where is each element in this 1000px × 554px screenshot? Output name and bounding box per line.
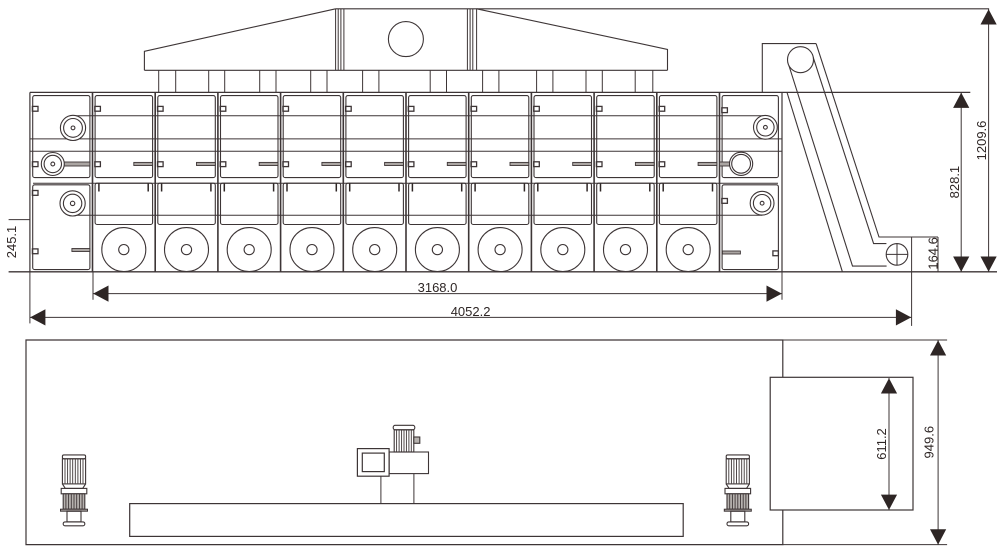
svg-text:245.1: 245.1 [4, 226, 19, 259]
svg-text:949.6: 949.6 [922, 426, 937, 459]
svg-text:611.2: 611.2 [874, 428, 889, 460]
svg-text:1209.6: 1209.6 [974, 121, 989, 161]
svg-text:3168.0: 3168.0 [418, 280, 458, 295]
svg-text:828.1: 828.1 [947, 166, 962, 199]
svg-text:4052.2: 4052.2 [451, 304, 491, 319]
svg-text:164.6: 164.6 [926, 237, 941, 270]
